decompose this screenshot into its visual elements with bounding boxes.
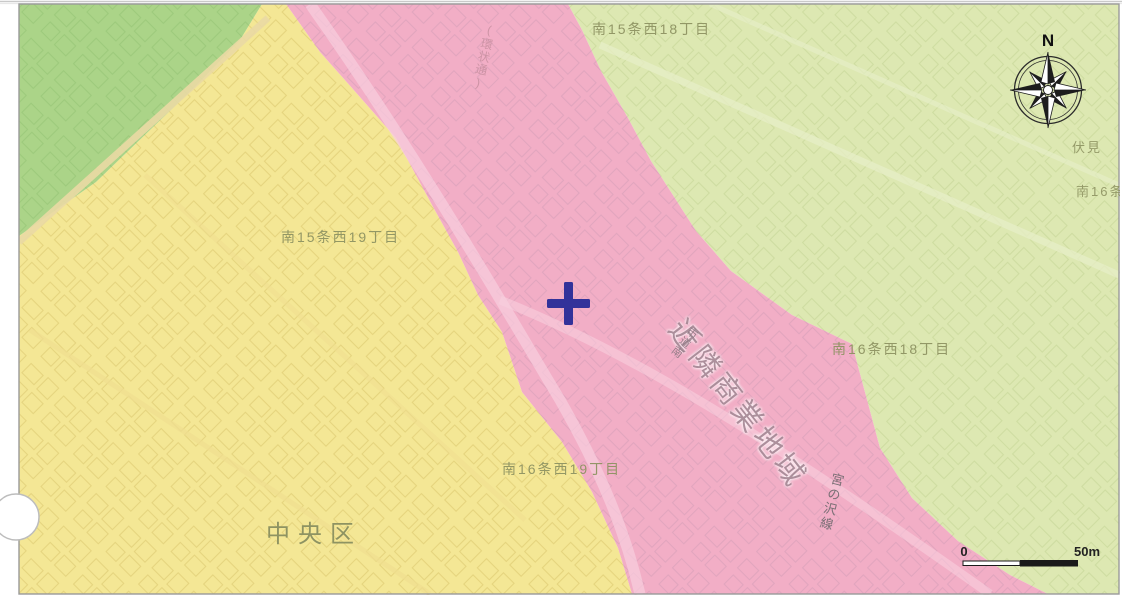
scale-zero-label: 0 [960, 544, 967, 559]
scale-distance-label: 50m [1074, 544, 1100, 559]
punch-hole-artifact [0, 494, 39, 540]
scanned-zoning-map-page: N 0 50m 南15条西18丁目 南15条西19丁目 南16条西18丁目 南1… [0, 0, 1122, 601]
compass-north-label: N [1042, 31, 1054, 50]
zoning-map-canvas: N 0 50m [0, 0, 1122, 601]
